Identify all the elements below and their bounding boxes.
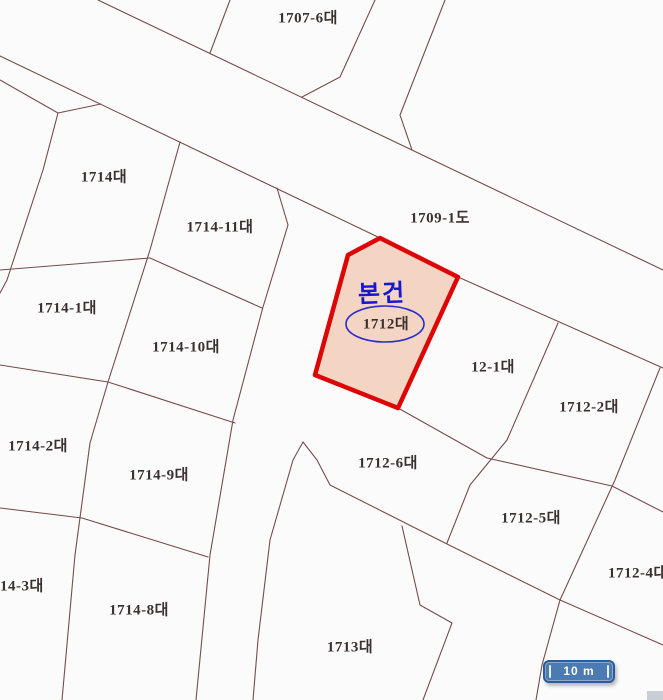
parcel-label-1714-3: 1714-3대: [0, 575, 44, 596]
cadastral-map-canvas[interactable]: 1707-6대 1714대 1714-11대 1709-1도 12-1대 171…: [0, 0, 663, 700]
scale-bar-right-tick: [607, 665, 609, 678]
map-scale-bar: 10 m: [543, 660, 615, 683]
parcel-label-1714-8: 1714-8대: [109, 599, 169, 620]
scale-bar-left-tick: [549, 665, 551, 678]
parcel-label-1713: 1713대: [327, 636, 373, 657]
parcel-label-1712-2: 1712-2대: [559, 396, 619, 417]
parcel-label-1714-10: 1714-10대: [152, 336, 220, 357]
parcel-label-1714-2: 1714-2대: [8, 435, 68, 456]
parcel-label-1714-9: 1714-9대: [129, 464, 189, 485]
parcel-label-1712-4: 1712-4대: [608, 562, 663, 583]
scale-bar-label: 10 m: [563, 665, 594, 677]
subject-callout-label: 본건: [357, 273, 406, 310]
viewport-corner-patch: [647, 691, 663, 700]
road-label-1709-1: 1709-1도: [410, 207, 470, 228]
parcel-label-1714: 1714대: [81, 166, 127, 187]
parcel-label-12-1: 12-1대: [471, 356, 515, 377]
parcel-label-1707-6: 1707-6대: [278, 7, 338, 28]
parcel-label-1714-11: 1714-11대: [187, 216, 254, 237]
parcel-label-1712-5: 1712-5대: [501, 507, 561, 528]
subject-parcel-label: 1712대: [363, 313, 409, 334]
parcel-label-1712-6: 1712-6대: [358, 452, 418, 473]
parcel-boundary-layer: [0, 0, 663, 700]
parcel-label-1714-1: 1714-1대: [37, 297, 97, 318]
